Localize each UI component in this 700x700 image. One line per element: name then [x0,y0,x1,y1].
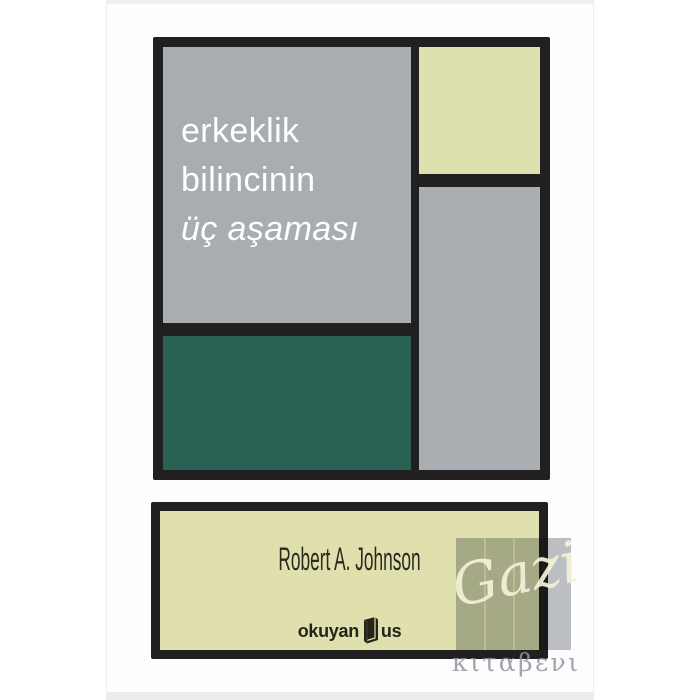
title-line-1: erkeklik [181,107,359,156]
watermark-divider [513,538,515,650]
watermark-divider [542,538,544,650]
book-cover-front: erkeklik bilincinin üç aşaması [153,37,550,480]
watermark-divider [484,538,486,650]
product-photo: erkeklik bilincinin üç aşaması Robert A.… [106,0,594,700]
green-color-block [163,336,411,470]
title-line-3: üç aşaması [181,205,359,254]
book-title: erkeklik bilincinin üç aşaması [181,107,359,254]
gray-color-block [419,187,540,470]
cream-color-block [419,47,540,174]
publisher-word-right: us [381,618,401,644]
photo-top-strip [107,0,593,4]
book-icon [360,616,380,645]
title-line-2: bilincinin [181,156,359,205]
photo-bottom-strip [107,692,593,700]
author-name: Robert A. Johnson [247,541,452,578]
watermark-caption-text: κιταβενι [452,648,581,677]
publisher-word-left: okuyan [298,618,359,644]
gray-title-block: erkeklik bilincinin üç aşaması [163,47,411,323]
watermark-overlay-box [456,538,571,650]
